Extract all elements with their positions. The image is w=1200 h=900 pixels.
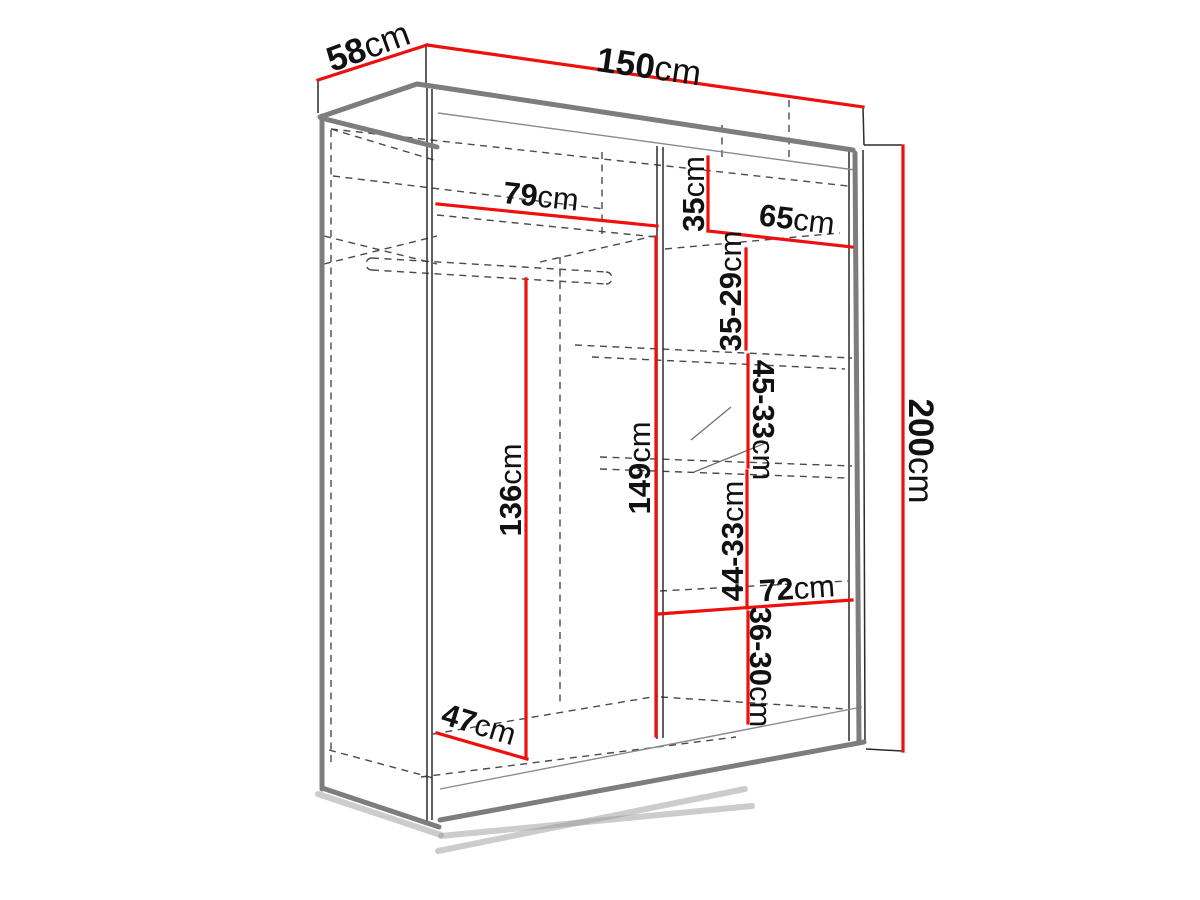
dim-label-gap2: 45-33cm: [746, 360, 781, 481]
wardrobe-outline: [320, 84, 864, 827]
dim-label-height: 200cm: [901, 398, 940, 503]
dim-label-depth: 58cm: [321, 14, 415, 80]
dim-label-right-top: 35cm: [676, 156, 711, 232]
dim-label-gap3: 44-33cm: [715, 481, 750, 602]
dimension-labels: 58cm 150cm 200cm 79cm 65cm 35cm 35-29cm …: [321, 14, 939, 752]
dim-label-gap4: 36-30cm: [743, 607, 778, 728]
dim-label-right-shelf: 65cm: [757, 197, 837, 241]
dim-label-right-column: 149cm: [622, 421, 657, 514]
base-shadow: [318, 789, 752, 851]
hanging-rail: [366, 258, 612, 284]
dim-label-72-shelf: 72cm: [758, 568, 836, 608]
wardrobe-dimension-diagram: 58cm 150cm 200cm 79cm 65cm 35cm 35-29cm …: [0, 0, 1200, 900]
diagram-canvas: 58cm 150cm 200cm 79cm 65cm 35cm 35-29cm …: [0, 0, 1200, 900]
wardrobe-thin-outline: [318, 45, 902, 822]
dim-label-width: 150cm: [594, 40, 703, 93]
dim-label-hanging-height: 136cm: [493, 443, 528, 536]
dim-label-gap1: 35-29cm: [713, 231, 748, 352]
